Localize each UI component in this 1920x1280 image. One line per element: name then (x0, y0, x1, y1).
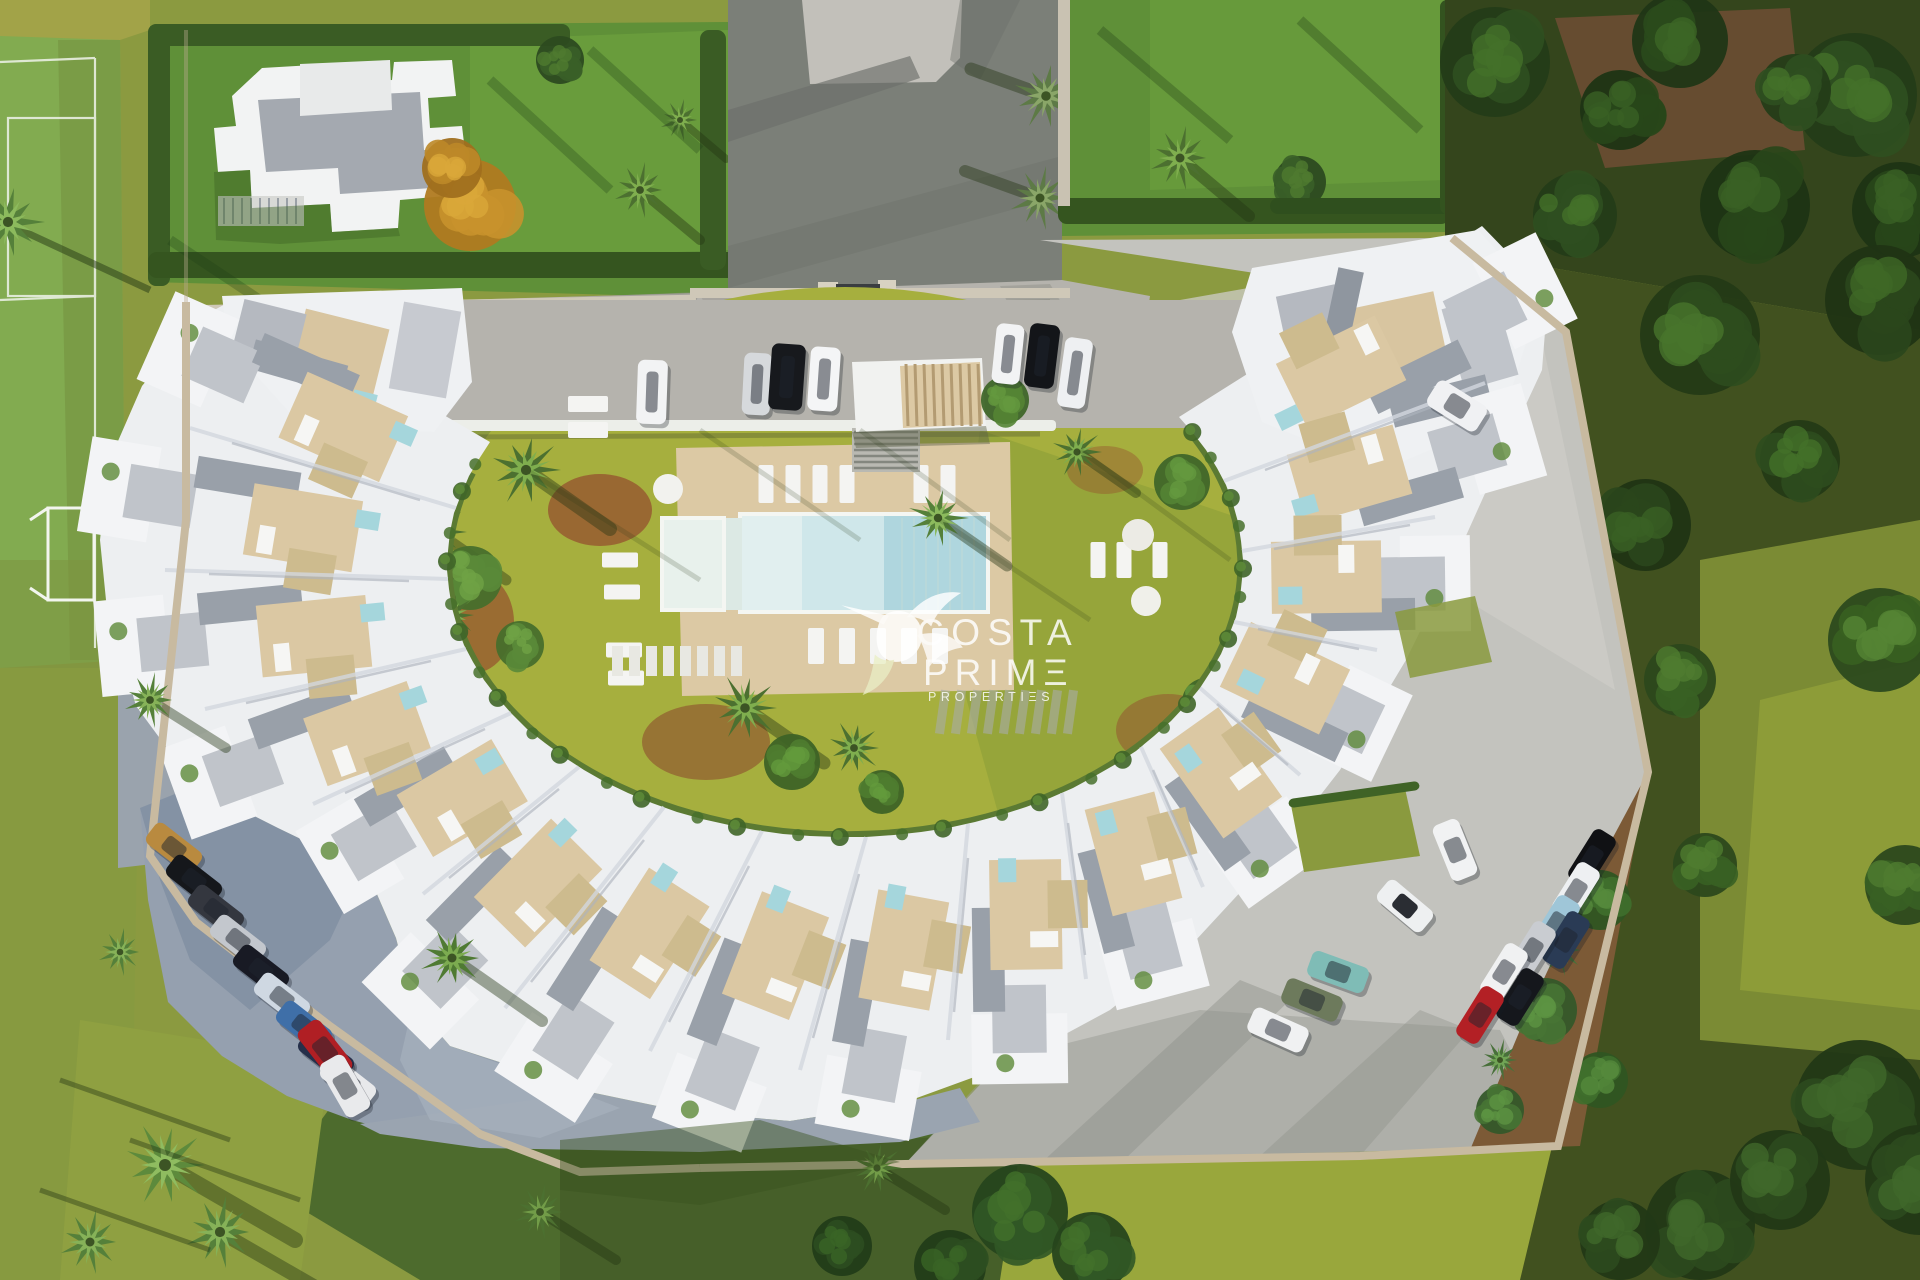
svg-text:PRIMΞ: PRIMΞ (923, 652, 1075, 693)
svg-text:PROPERTIΞS: PROPERTIΞS (928, 690, 1054, 704)
svg-text:COSTA: COSTA (917, 612, 1079, 653)
